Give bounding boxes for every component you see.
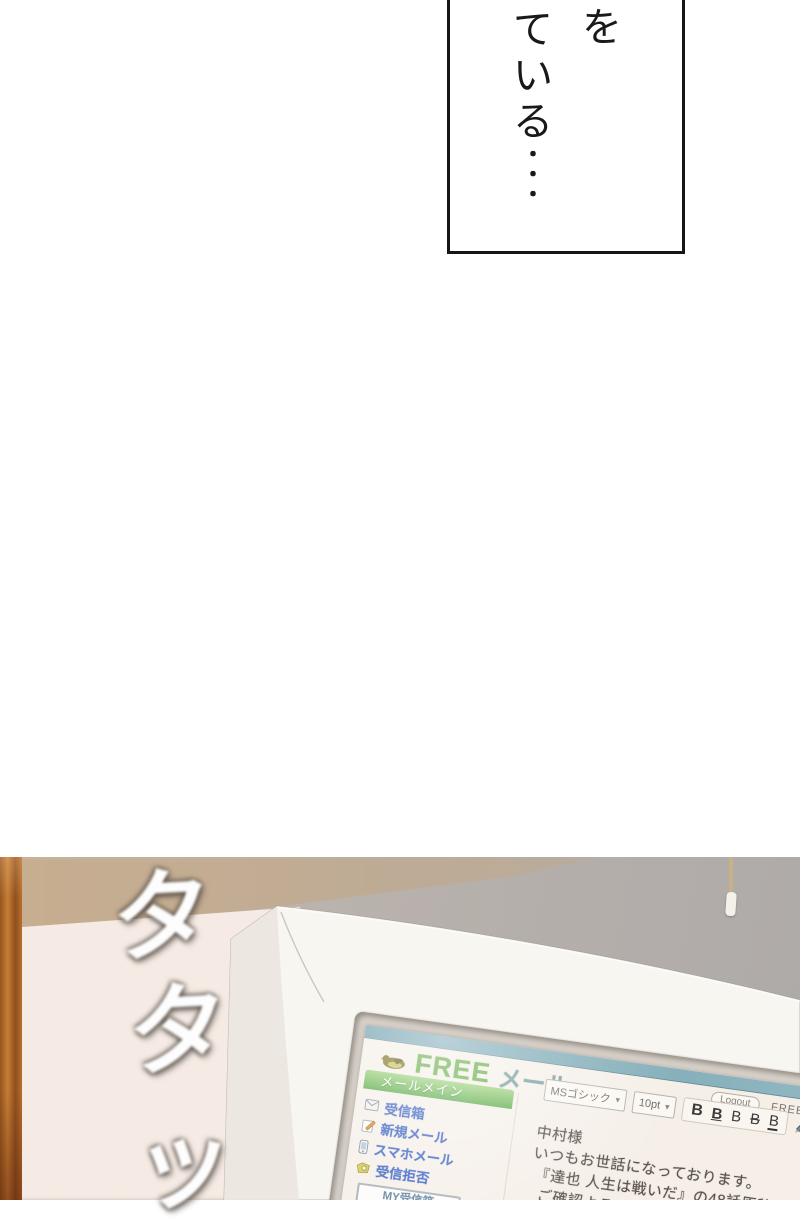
email-compose-body[interactable]: 中村様 いつもお世話になっております。 『達也 人生は戦いだ』の48話原稿を送付… — [526, 1122, 800, 1200]
font-family-select[interactable]: MSゴシック — [543, 1079, 627, 1112]
bubble-text-column-right: を — [580, 5, 624, 51]
sfx-char: ッ — [133, 1079, 235, 1230]
font-size-select[interactable]: 10pt — [631, 1091, 677, 1119]
inbox-icon — [364, 1099, 379, 1112]
bird-logo-icon — [380, 1051, 408, 1070]
strikethrough-button[interactable]: B — [749, 1111, 761, 1127]
bubble-char: て — [511, 7, 555, 53]
bubble-char: い — [511, 53, 555, 99]
bubble-char: を — [580, 5, 624, 51]
ellipsis-dot: ・ — [511, 185, 555, 205]
mail-sidebar: メールメイン 受信箱 新規メール — [342, 1069, 514, 1200]
underline-button[interactable]: B — [768, 1113, 780, 1131]
block-icon — [355, 1161, 371, 1175]
phone-icon — [358, 1139, 369, 1154]
sfx-char: タ — [127, 946, 229, 1097]
speech-bubble: を て い る ・ ・ ・ — [447, 0, 685, 254]
bubble-char: る — [511, 99, 555, 145]
compose-icon — [361, 1118, 376, 1133]
bold-underline-button[interactable]: B — [711, 1106, 724, 1122]
font-color-pencil-icon[interactable] — [793, 1116, 800, 1136]
bubble-text-column-left: て い る ・ ・ ・ — [511, 7, 555, 205]
style-button[interactable]: B — [730, 1108, 742, 1124]
bold-button[interactable]: B — [690, 1102, 704, 1119]
